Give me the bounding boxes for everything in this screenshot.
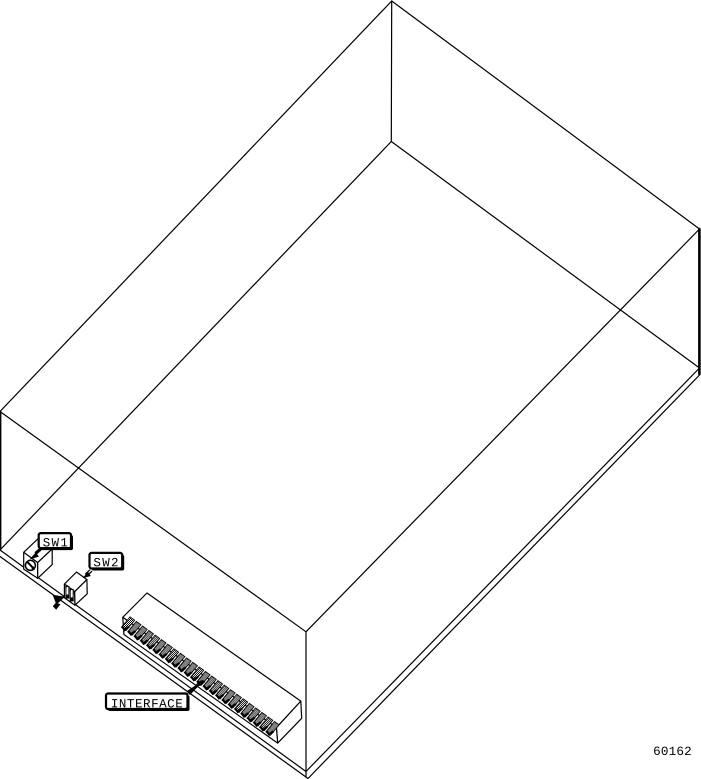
svg-text:INTERFACE: INTERFACE bbox=[111, 697, 183, 711]
svg-text:SW1: SW1 bbox=[43, 536, 69, 550]
svg-text:60162: 60162 bbox=[653, 745, 692, 759]
svg-text:SW2: SW2 bbox=[93, 556, 119, 570]
